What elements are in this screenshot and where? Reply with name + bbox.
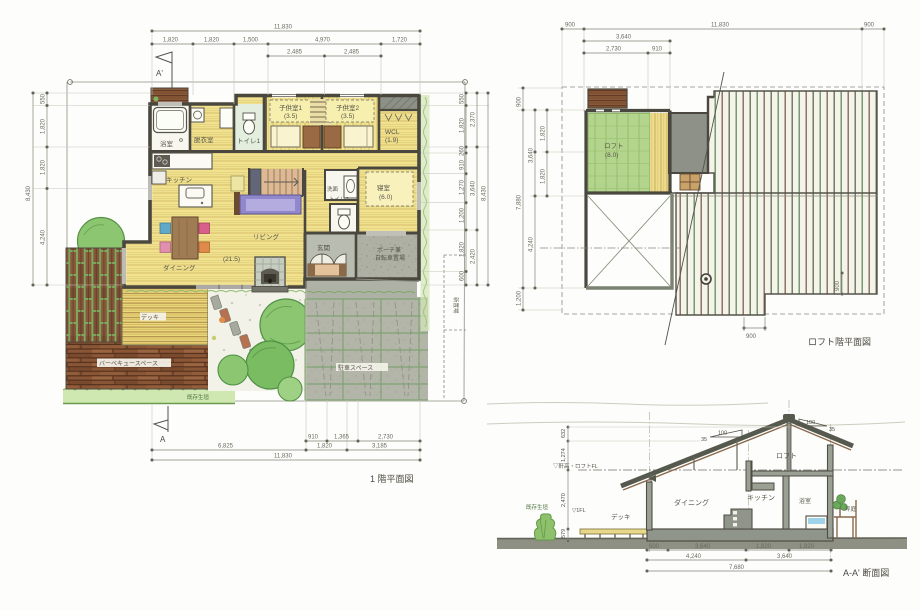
svg-text:1,200: 1,200 — [460, 207, 466, 223]
svg-text:3,640: 3,640 — [471, 180, 477, 196]
svg-text:1,270: 1,270 — [460, 179, 466, 195]
svg-text:既存生垣: 既存生垣 — [187, 393, 210, 401]
svg-text:11,830: 11,830 — [274, 454, 293, 460]
svg-text:バーベキュースペース: バーベキュースペース — [99, 361, 158, 368]
svg-text:A-A' 断面図: A-A' 断面図 — [843, 567, 889, 578]
svg-text:900: 900 — [565, 23, 576, 29]
svg-text:100: 100 — [718, 431, 727, 437]
svg-text:6,825: 6,825 — [218, 444, 234, 450]
svg-text:浴室: 浴室 — [799, 497, 811, 505]
svg-text:11,830: 11,830 — [274, 25, 293, 31]
svg-text:1,820: 1,820 — [163, 38, 179, 44]
svg-text:550: 550 — [41, 93, 47, 104]
svg-text:35: 35 — [701, 437, 707, 443]
svg-text:A: A — [160, 435, 166, 444]
svg-text:A': A' — [156, 69, 163, 78]
svg-text:579: 579 — [561, 529, 567, 538]
svg-text:トイレ1: トイレ1 — [237, 138, 261, 145]
svg-text:7,680: 7,680 — [729, 565, 745, 571]
svg-text:脱衣室: 脱衣室 — [194, 135, 214, 144]
svg-text:1,720: 1,720 — [392, 38, 408, 44]
svg-text:4,240: 4,240 — [41, 229, 47, 245]
svg-text:910: 910 — [308, 435, 319, 441]
svg-text:洗面: 洗面 — [327, 185, 339, 193]
svg-text:ロフト階平面図: ロフト階平面図 — [808, 337, 871, 347]
svg-text:910: 910 — [652, 47, 663, 53]
svg-text:632: 632 — [561, 429, 567, 438]
svg-text:(3.5): (3.5) — [284, 113, 297, 120]
svg-text:リビング: リビング — [253, 232, 280, 241]
svg-text:600: 600 — [460, 270, 466, 281]
svg-text:550: 550 — [460, 93, 466, 104]
svg-text:子供室2: 子供室2 — [336, 103, 360, 112]
svg-text:(3.5): (3.5) — [341, 113, 354, 120]
svg-text:1,820: 1,820 — [41, 159, 47, 175]
svg-text:(1.9): (1.9) — [385, 137, 398, 144]
svg-text:ロフト: ロフト — [776, 452, 797, 460]
svg-text:▽1FL: ▽1FL — [572, 508, 586, 514]
svg-text:3,640: 3,640 — [529, 147, 535, 163]
svg-text:260: 260 — [460, 145, 466, 156]
svg-text:8,430: 8,430 — [26, 185, 32, 201]
svg-text:キッチン: キッチン — [747, 494, 775, 502]
svg-text:自転車置場: 自転車置場 — [375, 254, 405, 262]
svg-text:(6.0): (6.0) — [379, 194, 392, 201]
svg-text:100: 100 — [806, 420, 815, 426]
svg-text:1,820: 1,820 — [460, 117, 466, 133]
svg-text:ポーチ兼: ポーチ兼 — [377, 246, 401, 254]
svg-text:1,500: 1,500 — [243, 38, 259, 44]
svg-text:キッチン: キッチン — [166, 176, 192, 184]
svg-text:1,820: 1,820 — [317, 444, 333, 450]
svg-text:寝室: 寝室 — [377, 183, 391, 192]
svg-text:900: 900 — [746, 334, 757, 340]
svg-text:1,820: 1,820 — [41, 118, 47, 134]
svg-text:2,420: 2,420 — [471, 248, 477, 264]
svg-text:600: 600 — [649, 544, 660, 550]
svg-text:トイレ2: トイレ2 — [329, 197, 349, 203]
svg-text:1 階平面図: 1 階平面図 — [370, 474, 414, 484]
svg-text:(8.0): (8.0) — [605, 152, 618, 159]
svg-text:新置場: 新置場 — [452, 297, 460, 314]
svg-text:1,820: 1,820 — [460, 241, 466, 257]
svg-text:WCL: WCL — [385, 129, 400, 136]
svg-text:2,370: 2,370 — [471, 111, 477, 127]
svg-text:7,880: 7,880 — [517, 194, 523, 210]
svg-text:3,185: 3,185 — [372, 444, 388, 450]
svg-text:1,820: 1,820 — [799, 544, 815, 550]
svg-text:2,730: 2,730 — [378, 435, 394, 441]
svg-text:2,485: 2,485 — [287, 50, 303, 56]
svg-text:1,365: 1,365 — [334, 435, 350, 441]
svg-text:デッキ: デッキ — [611, 512, 631, 521]
svg-text:900: 900 — [517, 96, 523, 107]
svg-text:デッキ: デッキ — [141, 314, 159, 322]
svg-text:既存生垣: 既存生垣 — [526, 503, 549, 511]
svg-text:玄関: 玄関 — [317, 243, 330, 252]
svg-text:3,640: 3,640 — [777, 554, 793, 560]
svg-text:4,240: 4,240 — [686, 554, 702, 560]
svg-text:1,820: 1,820 — [541, 125, 547, 141]
svg-text:3,640: 3,640 — [616, 35, 632, 41]
svg-text:浴室: 浴室 — [160, 139, 174, 148]
svg-text:1,200: 1,200 — [517, 290, 523, 306]
svg-text:900: 900 — [835, 280, 841, 291]
svg-text:1,820: 1,820 — [756, 544, 772, 550]
svg-text:坪庭: 坪庭 — [845, 505, 857, 513]
svg-text:1,274: 1,274 — [561, 448, 567, 462]
svg-text:▽軒高・ロフトFL: ▽軒高・ロフトFL — [553, 462, 598, 470]
svg-text:910: 910 — [460, 159, 466, 170]
svg-text:8,430: 8,430 — [482, 185, 488, 201]
svg-text:2,730: 2,730 — [606, 47, 622, 53]
svg-text:1,820: 1,820 — [204, 38, 220, 44]
svg-text:ダイニング: ダイニング — [674, 498, 709, 507]
svg-text:駐車スペース: 駐車スペース — [338, 364, 373, 372]
svg-text:ロフト: ロフト — [604, 142, 624, 150]
svg-text:子供室1: 子供室1 — [279, 103, 303, 112]
svg-text:1,820: 1,820 — [541, 168, 547, 184]
svg-text:35: 35 — [829, 427, 835, 433]
svg-text:ダイニング: ダイニング — [163, 263, 196, 272]
svg-text:(21.5): (21.5) — [223, 256, 240, 263]
svg-text:900: 900 — [864, 23, 875, 29]
svg-text:4,240: 4,240 — [529, 236, 535, 252]
svg-text:2,470: 2,470 — [561, 493, 567, 507]
svg-text:2,485: 2,485 — [344, 50, 360, 56]
svg-text:11,830: 11,830 — [711, 23, 730, 29]
svg-text:3,640: 3,640 — [695, 544, 711, 550]
svg-text:4,970: 4,970 — [315, 38, 331, 44]
